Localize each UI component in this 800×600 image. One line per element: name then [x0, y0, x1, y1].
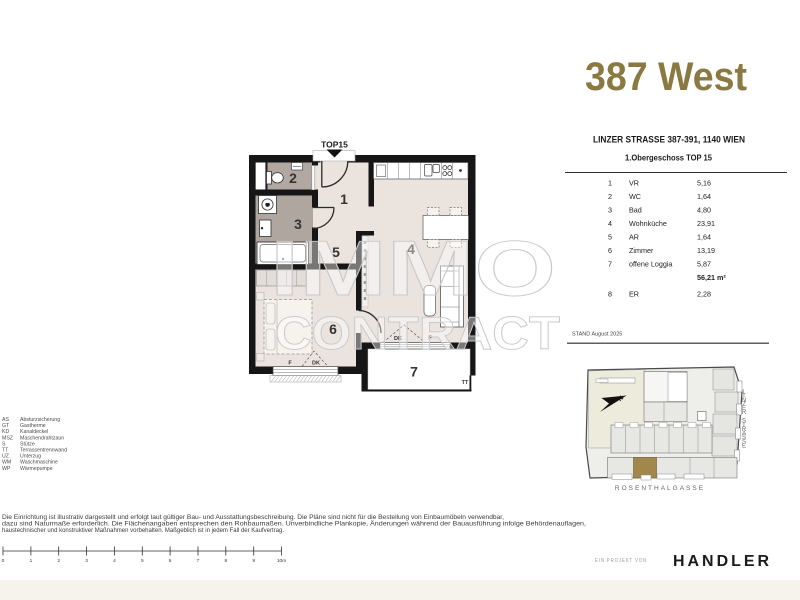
svg-text:2: 2	[57, 558, 60, 564]
svg-text:2,28: 2,28	[697, 290, 711, 299]
svg-text:WP: WP	[2, 466, 11, 472]
svg-text:Zimmer: Zimmer	[629, 246, 654, 255]
svg-text:MSZ: MSZ	[2, 435, 13, 441]
svg-text:TT: TT	[2, 448, 9, 454]
svg-text:6: 6	[608, 246, 612, 255]
svg-text:S: S	[2, 441, 6, 447]
svg-text:5: 5	[608, 233, 612, 242]
svg-text:haustechnischer und konstrukti: haustechnischer und konstruktiver Maßnah…	[2, 528, 284, 534]
svg-text:DK: DK	[312, 361, 320, 367]
svg-text:offene Loggia: offene Loggia	[629, 260, 672, 269]
svg-text:AR: AR	[629, 233, 639, 242]
svg-text:Terrassentrennwand: Terrassentrennwand	[20, 448, 67, 454]
svg-text:4,80: 4,80	[697, 206, 711, 215]
svg-text:23,91: 23,91	[697, 219, 715, 228]
svg-text:2: 2	[608, 192, 612, 201]
svg-text:Bad: Bad	[629, 206, 642, 215]
svg-text:IMMO: IMMO	[270, 224, 556, 312]
svg-text:5,16: 5,16	[697, 179, 711, 188]
svg-text:3: 3	[85, 558, 88, 564]
svg-text:9: 9	[252, 558, 255, 564]
svg-text:10m: 10m	[277, 558, 286, 564]
svg-text:ER: ER	[629, 290, 639, 299]
svg-text:0: 0	[2, 558, 5, 564]
svg-text:EIN PROJEKT VON: EIN PROJEKT VON	[595, 558, 647, 564]
svg-text:5: 5	[141, 558, 144, 564]
svg-text:VR: VR	[629, 179, 639, 188]
svg-text:Waschmaschine: Waschmaschine	[20, 460, 58, 466]
svg-text:2: 2	[289, 170, 297, 186]
svg-text:7: 7	[608, 260, 612, 269]
svg-text:E: E	[742, 443, 746, 449]
svg-text:dazu sind Naturmaße erforderli: dazu sind Naturmaße erforderlich. Die Fl…	[2, 521, 586, 528]
svg-text:8: 8	[608, 290, 612, 299]
svg-text:4: 4	[113, 558, 116, 564]
svg-text:LINZER STRASSE 387-391, 1140 W: LINZER STRASSE 387-391, 1140 WIEN	[593, 135, 745, 145]
svg-text:6: 6	[169, 558, 172, 564]
svg-text:R: R	[742, 410, 747, 416]
svg-text:7: 7	[410, 364, 418, 380]
svg-text:Die Einrichtung ist illustrati: Die Einrichtung ist illustrativ dargeste…	[2, 515, 504, 521]
svg-text:Kanaldeckel: Kanaldeckel	[20, 429, 48, 435]
svg-text:HANDLER: HANDLER	[673, 553, 772, 570]
svg-text:Stütze: Stütze	[20, 441, 35, 447]
svg-text:1.Obergeschoss TOP 15: 1.Obergeschoss TOP 15	[625, 153, 712, 163]
svg-text:TT: TT	[462, 380, 469, 386]
svg-text:Wohnküche: Wohnküche	[629, 219, 667, 228]
svg-text:Absturzsicherung: Absturzsicherung	[20, 417, 60, 423]
svg-text:KD: KD	[2, 429, 9, 435]
svg-text:13,19: 13,19	[697, 246, 715, 255]
svg-text:STAND August 2025: STAND August 2025	[572, 332, 622, 338]
svg-text:TOP15: TOP15	[321, 140, 348, 150]
svg-text:Maschendrahtzaun: Maschendrahtzaun	[20, 435, 64, 441]
svg-text:5,87: 5,87	[697, 260, 711, 269]
svg-text:4: 4	[608, 219, 612, 228]
svg-text:Unterzug: Unterzug	[20, 454, 41, 460]
svg-text:ROSENTHALGASSE: ROSENTHALGASSE	[615, 485, 705, 492]
svg-text:AS: AS	[2, 417, 9, 423]
svg-text:CONTRACT: CONTRACT	[275, 307, 560, 359]
svg-text:387 West: 387 West	[585, 55, 747, 99]
svg-text:1,64: 1,64	[697, 192, 711, 201]
svg-text:56,21 m²: 56,21 m²	[697, 273, 726, 282]
svg-text:1: 1	[30, 558, 33, 564]
svg-text:1,64: 1,64	[697, 233, 711, 242]
svg-text:8: 8	[224, 558, 227, 564]
svg-text:3: 3	[608, 206, 612, 215]
svg-text:Gastherme: Gastherme	[20, 423, 46, 429]
svg-text:WC: WC	[629, 192, 641, 201]
svg-text:GT: GT	[2, 423, 10, 429]
svg-text:1: 1	[340, 191, 348, 207]
svg-text:1: 1	[608, 179, 612, 188]
svg-text:WM: WM	[2, 460, 11, 466]
svg-text:UZ: UZ	[2, 454, 9, 460]
svg-text:Wärmepumpe: Wärmepumpe	[20, 466, 53, 472]
svg-text:7: 7	[197, 558, 200, 564]
